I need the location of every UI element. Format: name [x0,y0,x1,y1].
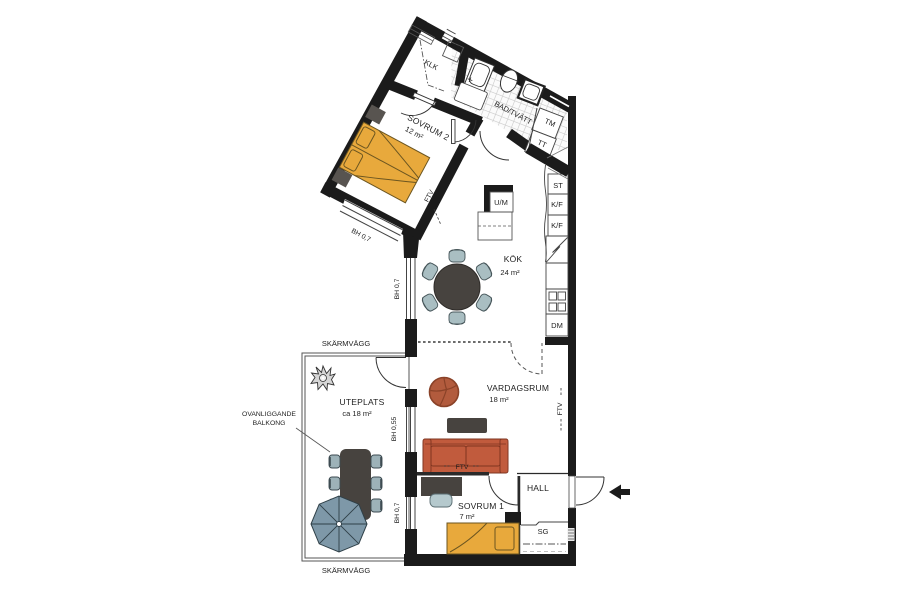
svg-text:FTV: FTV [557,402,564,415]
svg-text:SKÄRMVÄGG: SKÄRMVÄGG [322,339,371,348]
svg-text:OVANLIGGANDE: OVANLIGGANDE [242,411,296,418]
svg-text:ST: ST [553,181,563,190]
svg-text:SG: SG [538,527,549,536]
svg-text:BH 0,7: BH 0,7 [394,502,401,523]
svg-text:DM: DM [551,321,563,330]
svg-text:KÖK: KÖK [504,254,523,264]
svg-text:24 m²: 24 m² [500,268,520,277]
svg-text:7 m²: 7 m² [460,512,476,521]
svg-text:SOVRUM 1: SOVRUM 1 [458,501,504,511]
svg-text:K/F: K/F [551,221,563,230]
svg-text:ca 18 m²: ca 18 m² [342,409,372,418]
svg-text:BH 0,7: BH 0,7 [394,278,401,299]
svg-text:BH 0,55: BH 0,55 [391,417,398,442]
svg-text:VARDAGSRUM: VARDAGSRUM [487,383,549,393]
svg-text:BALKONG: BALKONG [253,420,286,427]
svg-text:UTEPLATS: UTEPLATS [340,397,385,407]
svg-text:U/M: U/M [494,198,508,207]
svg-text:FTV: FTV [456,464,469,471]
svg-text:K/F: K/F [551,200,563,209]
svg-text:SKÄRMVÄGG: SKÄRMVÄGG [322,566,371,575]
svg-text:HALL: HALL [527,483,549,493]
svg-text:18 m²: 18 m² [489,395,509,404]
